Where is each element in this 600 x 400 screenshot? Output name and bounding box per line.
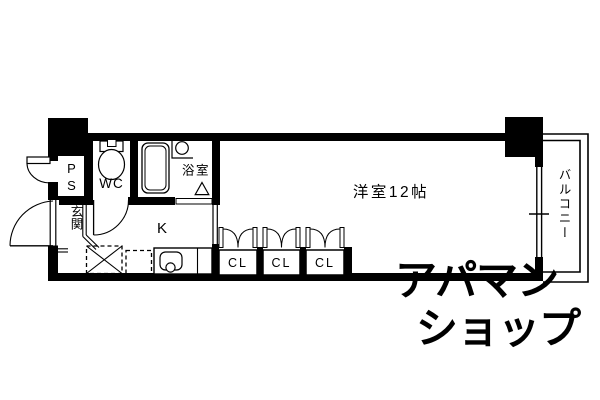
wall-wc-bath: [130, 141, 138, 197]
wall-water-kitchen: [128, 197, 175, 205]
room-label-kitchen: K: [157, 220, 167, 237]
closet-divider-3: [344, 247, 352, 273]
entrance-door-opening: [47, 200, 59, 246]
floorplan-canvas: アパマン ショップ: [0, 0, 600, 400]
closet-label-1: CL: [228, 256, 248, 270]
wall-top: [88, 133, 510, 141]
bifold-post: [219, 228, 223, 248]
bathtub-outer: [142, 143, 169, 193]
window-opening: [535, 167, 545, 257]
closet-divider-1: [257, 247, 263, 273]
wall-right-b: [535, 256, 543, 273]
bath-sliding-door: [176, 199, 212, 205]
pillar-top-left: [48, 118, 88, 142]
toilet-bowl: [99, 150, 125, 180]
room-label-pipe-space: PS: [64, 161, 79, 195]
room-label-bath: 浴室: [182, 163, 210, 178]
bathtub-icon: [142, 143, 169, 193]
kitchen-sink-icon: [154, 248, 212, 274]
watermark-line2: ショップ: [416, 305, 581, 352]
bifold-post: [253, 228, 257, 248]
pillar-top-right: [505, 117, 543, 157]
bifold-post: [296, 228, 300, 248]
bifold-post: [306, 228, 310, 248]
sink-faucet: [166, 263, 175, 272]
balcony-label: バルコニー: [557, 168, 571, 241]
closet-divider-2: [300, 247, 306, 273]
closet-label-2: CL: [272, 256, 292, 270]
toilet-icon: [99, 140, 125, 180]
wall-bath-mainroom: [212, 133, 220, 205]
toilet-tank-notch: [108, 140, 117, 147]
room-label-wc: WC: [99, 176, 124, 191]
wall-right-a: [535, 157, 543, 168]
bifold-post: [263, 228, 267, 248]
meter-box-door-leaf: [27, 157, 50, 164]
closet-label-3: CL: [315, 256, 335, 270]
closet-divider-0: [212, 244, 219, 273]
room-label-main-room: 洋室12帖: [353, 183, 429, 201]
room-label-entrance: 玄関: [69, 204, 83, 231]
floorplan-image: アパマン ショップ: [0, 0, 600, 400]
bifold-post: [340, 228, 344, 248]
washbasin-bowl: [176, 142, 189, 155]
wall-above-ps: [56, 141, 93, 156]
wall-ps-wc: [84, 156, 93, 205]
